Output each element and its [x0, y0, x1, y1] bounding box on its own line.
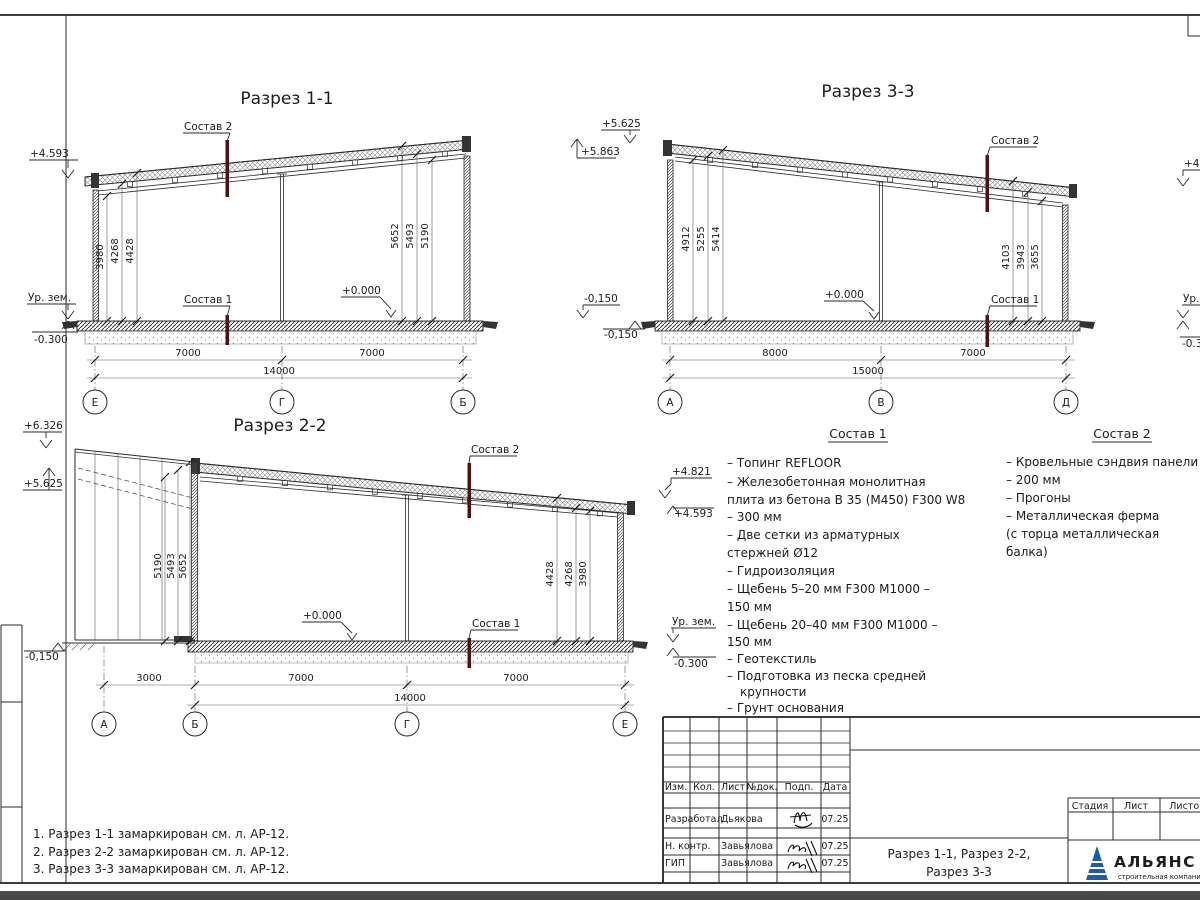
- column: [464, 156, 470, 321]
- section-cut-marker: [986, 155, 990, 212]
- list-item: – Щебень 5–20 мм F300 М1000 –: [727, 582, 930, 596]
- axis-letter: Е: [622, 719, 629, 731]
- sostav-2-title: Состав 2: [1093, 426, 1150, 441]
- elevation-label: -0,150: [604, 329, 638, 341]
- tb-date: 07.25: [821, 814, 848, 825]
- axis-letter: Б: [459, 397, 466, 409]
- list-item: – Грунт основания: [727, 701, 844, 715]
- span-dim: 7000: [288, 673, 313, 684]
- dim-label: 5493: [405, 223, 416, 248]
- list-item: – Геотекстиль: [727, 652, 817, 666]
- axis-letter: Г: [404, 719, 410, 731]
- list-item: 150 мм: [727, 635, 772, 649]
- elevation-label: -0.300: [34, 334, 68, 346]
- roof-panel: [85, 140, 470, 186]
- span-dim: 7000: [175, 348, 200, 359]
- elevation-label: +4.29: [1184, 158, 1200, 170]
- elevation-label: +4.593: [30, 148, 69, 160]
- section-cut-marker: [226, 140, 230, 197]
- dim-label: 4103: [1001, 244, 1012, 269]
- span-dim: 7000: [503, 673, 528, 684]
- company-logo: АЛЬЯНС строительная компания: [1085, 846, 1200, 881]
- column: [192, 462, 198, 641]
- window-bottom-bar: [0, 891, 1200, 900]
- tb-role: Н. контр.: [665, 841, 711, 852]
- dim-label: 3980: [95, 244, 106, 269]
- elevation-label: -0,150: [584, 293, 618, 305]
- list-item: – Топинг REFLOOR: [727, 456, 841, 470]
- dim-label: 3980: [578, 561, 589, 586]
- list-item: – Железобетонная монолитная: [727, 475, 926, 489]
- sostav-1-title: Состав 1: [829, 426, 886, 441]
- signature: [788, 858, 817, 873]
- sostav1-label: Состав 1: [991, 294, 1039, 306]
- column: [277, 174, 287, 321]
- floor-level-mark: +0.000: [303, 610, 342, 622]
- section-cut-marker: [468, 638, 472, 668]
- list-item: крупности: [740, 685, 806, 699]
- section-1-1: Разрез 1-1 3980 4268: [27, 89, 620, 414]
- list-item: балка): [1006, 545, 1048, 559]
- span-dim: 8000: [762, 348, 787, 359]
- list-item: стержней Ø12: [727, 546, 818, 560]
- sostav1-label: Состав 1: [184, 294, 232, 306]
- elevation-label: -0,150: [25, 651, 59, 663]
- end-wall-panel: [75, 449, 195, 640]
- logo-name: АЛЬЯНС: [1114, 853, 1196, 871]
- doc-title-line1: Разрез 1-1, Разрез 2-2,: [888, 847, 1031, 861]
- tb-col-header: Подп.: [785, 782, 814, 793]
- floor-level-mark: +0.000: [825, 289, 864, 301]
- tb-role: Разработал: [665, 814, 723, 825]
- axis-letter: Б: [191, 719, 198, 731]
- slab-bedding: [195, 652, 628, 663]
- ground-level-label: Ур. зем.: [1183, 293, 1200, 305]
- dim-label: 4268: [564, 561, 575, 586]
- elevation-label: +5.625: [602, 118, 641, 130]
- dim-label: 4268: [110, 238, 121, 263]
- dim-label: 5255: [696, 226, 707, 251]
- section-cut-marker: [226, 315, 230, 345]
- dim-label: 4912: [681, 226, 692, 251]
- logo-subtitle: строительная компания: [1118, 873, 1200, 881]
- span-dim: 7000: [960, 348, 985, 359]
- list-item: – Металлическая ферма: [1006, 509, 1159, 523]
- note-line: 1. Разрез 1-1 замаркирован см. л. АР-12.: [33, 827, 289, 841]
- list-item: плита из бетона В 35 (М450) F300 W8: [727, 493, 965, 507]
- dim-label: 5190: [153, 553, 164, 578]
- tb-stage-header: Листов: [1169, 801, 1200, 812]
- section-1-1-title: Разрез 1-1: [240, 89, 333, 109]
- elevation-label: +5.625: [24, 478, 63, 490]
- section-2-2: Разрез 2-2: [23, 416, 716, 736]
- tb-date: 07.25: [821, 841, 848, 852]
- dim-label: 3655: [1030, 244, 1041, 269]
- bottom-dimensions: 8000 7000 15000 А В Д: [658, 346, 1078, 414]
- section-2-2-title: Разрез 2-2: [233, 416, 326, 436]
- signature: [788, 841, 817, 856]
- sostav-markers: Состав 2 Состав 1: [986, 135, 1040, 347]
- span-dim: 7000: [359, 348, 384, 359]
- tb-col-header: Дата: [823, 782, 848, 793]
- column: [876, 182, 886, 321]
- note-line: 2. Разрез 2-2 замаркирован см. л. АР-12.: [33, 845, 289, 859]
- sostav2-label: Состав 2: [471, 444, 519, 456]
- column: [402, 495, 412, 641]
- column: [1063, 205, 1069, 321]
- column: [618, 513, 624, 641]
- slab-bedding: [662, 331, 1073, 344]
- list-item: – 200 мм: [1006, 473, 1061, 487]
- axis-letter: А: [666, 397, 674, 409]
- note-line: 3. Разрез 3-3 замаркирован см. л. АР-12.: [33, 862, 289, 876]
- tb-col-header: Лист: [721, 782, 746, 793]
- section-3-3-title: Разрез 3-3: [821, 82, 914, 102]
- sostav-1-list: Состав 1 – Топинг REFLOOR – Железобетонн…: [727, 426, 965, 715]
- dim-label: 5493: [166, 553, 177, 578]
- list-item: – Гидроизоляция: [727, 564, 835, 578]
- list-item: – Две сетки из арматурных: [727, 528, 900, 542]
- section-3-3: Разрез 3-3 4912 5255 5414 4103 3943: [601, 82, 1200, 414]
- axis-letter: Д: [1062, 397, 1070, 409]
- floor-slab: [188, 641, 633, 652]
- tb-col-header: Кол.: [693, 782, 715, 793]
- tb-name: Завьялова: [721, 841, 773, 852]
- list-item: (с торца металлическая: [1006, 527, 1159, 541]
- drawing-sheet: Разрез 1-1 3980 4268: [0, 0, 1200, 900]
- elevation-label: +5.863: [581, 146, 620, 158]
- roof-panel: [195, 463, 633, 514]
- elevation-label: +6.326: [24, 420, 63, 432]
- tb-name: Дьякова: [721, 814, 763, 825]
- list-item: – Прогоны: [1006, 491, 1071, 505]
- tb-role: ГИП: [665, 858, 685, 869]
- purlins: [708, 158, 1028, 197]
- list-item: – Кровельные сэндвия панели: [1006, 455, 1198, 469]
- sostav-markers: Состав 2 Состав 1: [468, 444, 521, 668]
- title-block: Изм. Кол. Лист №док. Подп. Дата Разработ…: [663, 717, 1200, 883]
- dim-label: 3943: [1016, 244, 1027, 269]
- signature: [790, 813, 812, 827]
- total-dim: 14000: [394, 693, 426, 704]
- dim-label: 5190: [420, 223, 431, 248]
- section-cut-marker: [986, 315, 990, 347]
- elevation-label: +4.593: [674, 508, 713, 520]
- span-dim: 3000: [136, 673, 161, 684]
- sostav2-label: Состав 2: [991, 135, 1039, 147]
- dim-label: 5414: [711, 226, 722, 251]
- tb-col-header: Изм.: [665, 782, 687, 793]
- roof-panel: [667, 144, 1076, 197]
- ground-level-label: Ур. зем.: [28, 292, 71, 304]
- sostav2-label: Состав 2: [184, 121, 232, 133]
- axis-letter: Г: [279, 397, 285, 409]
- elevation-label: -0.300: [674, 658, 708, 670]
- tb-stage-header: Лист: [1124, 801, 1149, 812]
- axis-letter: Е: [92, 397, 99, 409]
- floor-slab: [655, 321, 1080, 331]
- total-dim: 14000: [263, 366, 295, 377]
- section-cut-marker: [468, 463, 472, 518]
- sostav1-label: Состав 1: [472, 618, 520, 630]
- sostav-markers: Состав 2 Состав 1: [183, 121, 232, 345]
- elevation-label: +4.821: [672, 466, 711, 478]
- drawing-canvas: Разрез 1-1 3980 4268: [0, 0, 1200, 900]
- dim-label: 5652: [390, 223, 401, 248]
- floor-slab: [77, 321, 483, 331]
- list-item: 150 мм: [727, 600, 772, 614]
- elevation-label: -0.300: [1182, 338, 1200, 350]
- notes: 1. Разрез 1-1 замаркирован см. л. АР-12.…: [33, 827, 289, 876]
- tb-stage-header: Стадия: [1072, 801, 1108, 812]
- column: [668, 160, 674, 321]
- total-dim: 15000: [852, 366, 884, 377]
- tb-name: Завьялова: [721, 858, 773, 869]
- ground-level-label: Ур. зем.: [672, 616, 715, 628]
- dim-label: 4428: [545, 561, 556, 586]
- dim-label: 4428: [125, 238, 136, 263]
- sostav-2-list: Состав 2 – Кровельные сэндвия панели – 2…: [1006, 426, 1198, 559]
- tb-col-header: №док.: [746, 782, 777, 793]
- list-item: – Щебень 20–40 мм F300 М1000 –: [727, 618, 937, 632]
- doc-title-line2: Разрез 3-3: [926, 865, 992, 879]
- list-item: – Подготовка из песка средней: [727, 669, 926, 683]
- bottom-dimensions: 7000 7000 14000 Е Г Б: [83, 346, 475, 414]
- list-item: – 300 мм: [727, 510, 782, 524]
- floor-level-mark: +0.000: [342, 285, 381, 297]
- axis-letter: В: [877, 397, 884, 409]
- axis-letter: А: [100, 719, 108, 731]
- dim-label: 5652: [178, 553, 189, 578]
- tb-date: 07.25: [821, 858, 848, 869]
- slab-bedding: [85, 331, 476, 344]
